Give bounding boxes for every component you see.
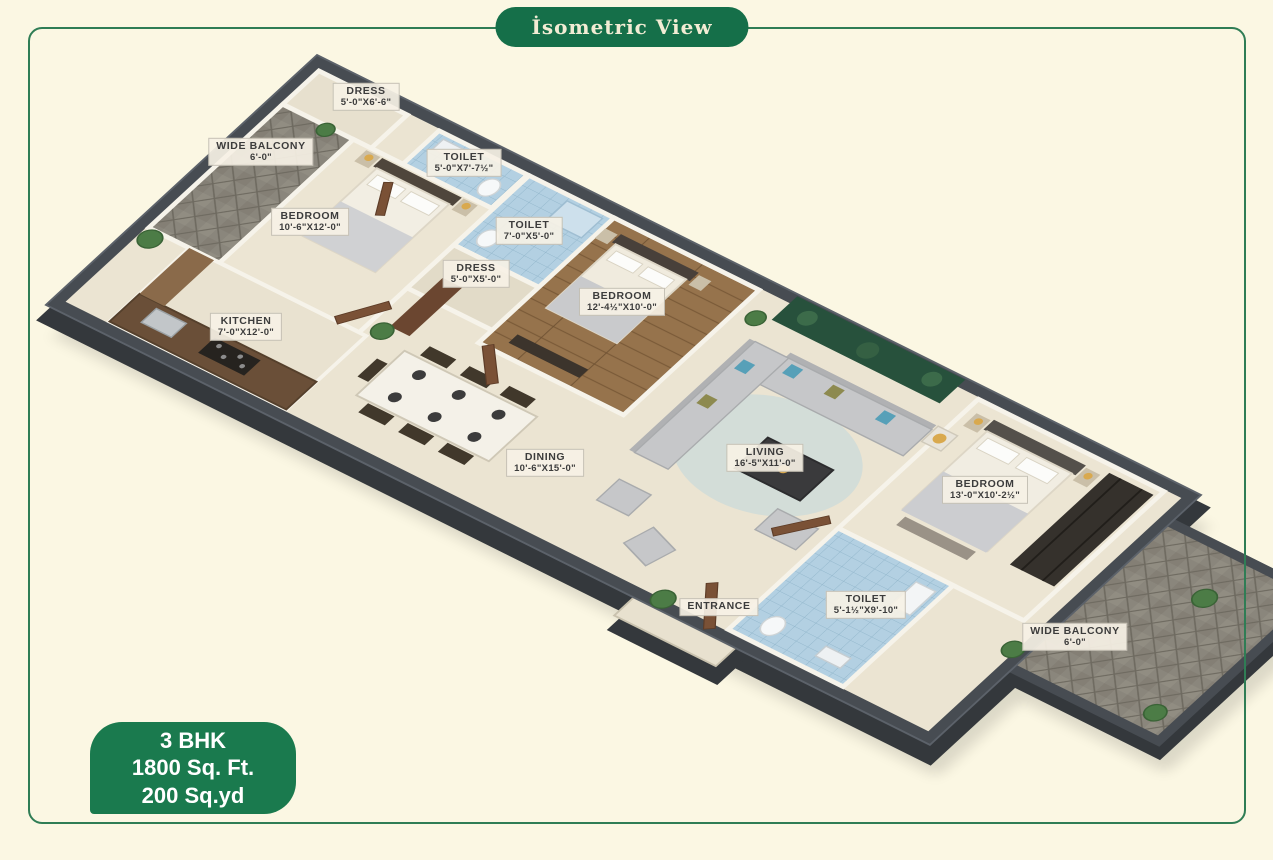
view-title-label: İsometric View (531, 15, 712, 39)
view-title-badge: İsometric View (495, 7, 748, 47)
info-badge-line-sqyd: 200 Sq.yd (142, 782, 245, 810)
info-badge-line-bhk: 3 BHK (160, 727, 226, 755)
info-badge-line-sqft: 1800 Sq. Ft. (132, 754, 254, 782)
info-badge: 3 BHK 1800 Sq. Ft. 200 Sq.yd (90, 722, 296, 814)
